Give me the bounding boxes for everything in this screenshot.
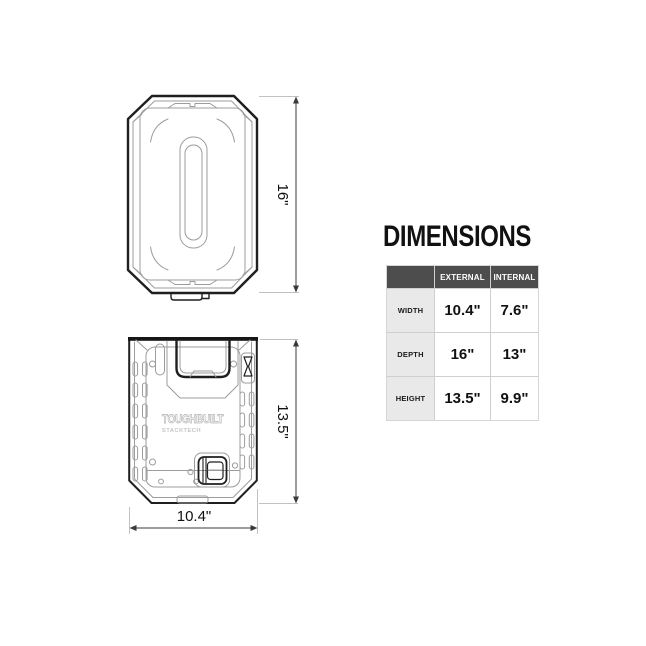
- dimensions-table: EXTERNAL INTERNAL WIDTH 10.4" 7.6" DEPTH…: [386, 265, 539, 421]
- row-label-height: HEIGHT: [387, 377, 434, 420]
- logo-stacktech-text: STACKTECH: [162, 428, 201, 434]
- column-header-internal: INTERNAL: [491, 266, 538, 288]
- depth-dimension-label: 16": [274, 183, 291, 205]
- width-dimension-label: 10.4": [177, 508, 212, 525]
- front-view-top-left-slot: [156, 344, 165, 375]
- front-view-drawing: TOUGHBUILT STACKTECH: [128, 337, 258, 503]
- front-view-handle-recess: [167, 341, 238, 398]
- depth-external-value: 16": [435, 333, 490, 376]
- width-internal-value: 7.6": [491, 289, 538, 332]
- top-view-top-latch-detail: [168, 104, 217, 109]
- top-view-handle-grip: [185, 145, 202, 240]
- top-view-bottom-latch-detail: [168, 280, 217, 285]
- height-dimension-label: 13.5": [274, 404, 291, 439]
- top-view-handle-recess: [180, 137, 207, 248]
- row-label-depth: DEPTH: [387, 333, 434, 376]
- dimensions-title: DIMENSIONS: [383, 223, 531, 251]
- product-dimensions-figure: TOUGHBUILT STACKTECH 16" 13.5": [0, 0, 646, 646]
- front-view-side-latch: [242, 353, 255, 383]
- column-header-external: EXTERNAL: [435, 266, 490, 288]
- depth-internal-value: 13": [491, 333, 538, 376]
- height-internal-value: 9.9": [491, 377, 538, 420]
- top-view-drawing: [128, 96, 257, 300]
- height-external-value: 13.5": [435, 377, 490, 420]
- technical-drawings: TOUGHBUILT STACKTECH 16" 13.5": [0, 0, 646, 646]
- top-view-lid-face: [140, 108, 245, 280]
- front-view-lid-edge: [128, 337, 258, 341]
- row-label-width: WIDTH: [387, 289, 434, 332]
- top-view-outer-outline: [128, 96, 257, 293]
- width-external-value: 10.4": [435, 289, 490, 332]
- top-view-corner-chevrons: [151, 119, 235, 270]
- table-corner-cell: [387, 266, 434, 288]
- logo-toughbuilt-text: TOUGHBUILT: [162, 413, 224, 426]
- top-view-inner-outline: [133, 101, 252, 288]
- depth-dimension: 16": [259, 97, 299, 293]
- height-dimension: 13.5": [259, 340, 299, 504]
- front-view-logo: TOUGHBUILT STACKTECH: [162, 413, 224, 434]
